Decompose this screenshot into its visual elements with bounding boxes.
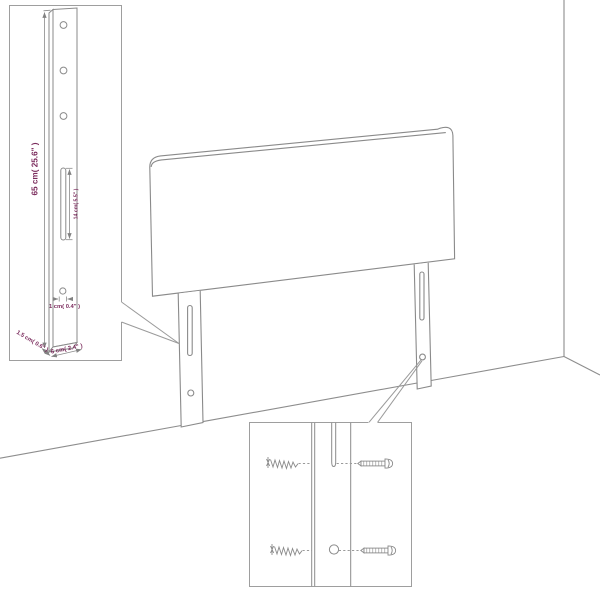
leader-line <box>369 360 421 422</box>
floor-line-left-c <box>0 426 181 459</box>
leg-slot <box>61 168 66 240</box>
floor-line-left-a <box>431 357 564 381</box>
detail-callout-bottom-right <box>250 360 423 586</box>
leg-hole-middle <box>60 67 67 74</box>
right-leg-hole <box>420 354 426 360</box>
dimension-height-label: 65 cm( 25.6" ) <box>31 142 40 195</box>
right-leg-slot <box>420 272 424 320</box>
leg-side-face <box>49 10 53 353</box>
leg-small-hole <box>60 288 66 294</box>
left-leg-hole <box>188 390 194 396</box>
left-leg-slot <box>188 306 193 356</box>
callout-leader-lines-right <box>369 360 422 422</box>
headboard-panel <box>150 127 455 296</box>
leader-line <box>378 361 422 423</box>
callout-leader-lines-left <box>122 302 180 344</box>
leg-hole-top <box>60 22 67 29</box>
left-leg <box>178 291 203 427</box>
floor-line-right <box>564 357 600 376</box>
dimension-slot-label: 14 cm( 5.5" ) <box>74 188 80 219</box>
panel-outline <box>150 127 455 296</box>
headboard-assembly-diagram: 65 cm( 25.6" ) 14 cm( 5.5" ) 1 cm( 0.4" … <box>0 0 600 600</box>
leg-detail <box>49 8 77 352</box>
leader-line <box>122 322 180 344</box>
screw-threads <box>364 462 382 466</box>
screw-threads <box>367 549 385 553</box>
leader-line <box>122 302 180 344</box>
diagram-canvas: 65 cm( 25.6" ) 14 cm( 5.5" ) 1 cm( 0.4" … <box>0 0 600 600</box>
callout-box-border <box>250 423 412 587</box>
dimension-hole-label: 1 cm( 0.4" ) <box>49 304 80 310</box>
strip-hole <box>329 545 338 554</box>
leg-hole-lower <box>60 113 67 120</box>
right-leg <box>414 263 431 389</box>
